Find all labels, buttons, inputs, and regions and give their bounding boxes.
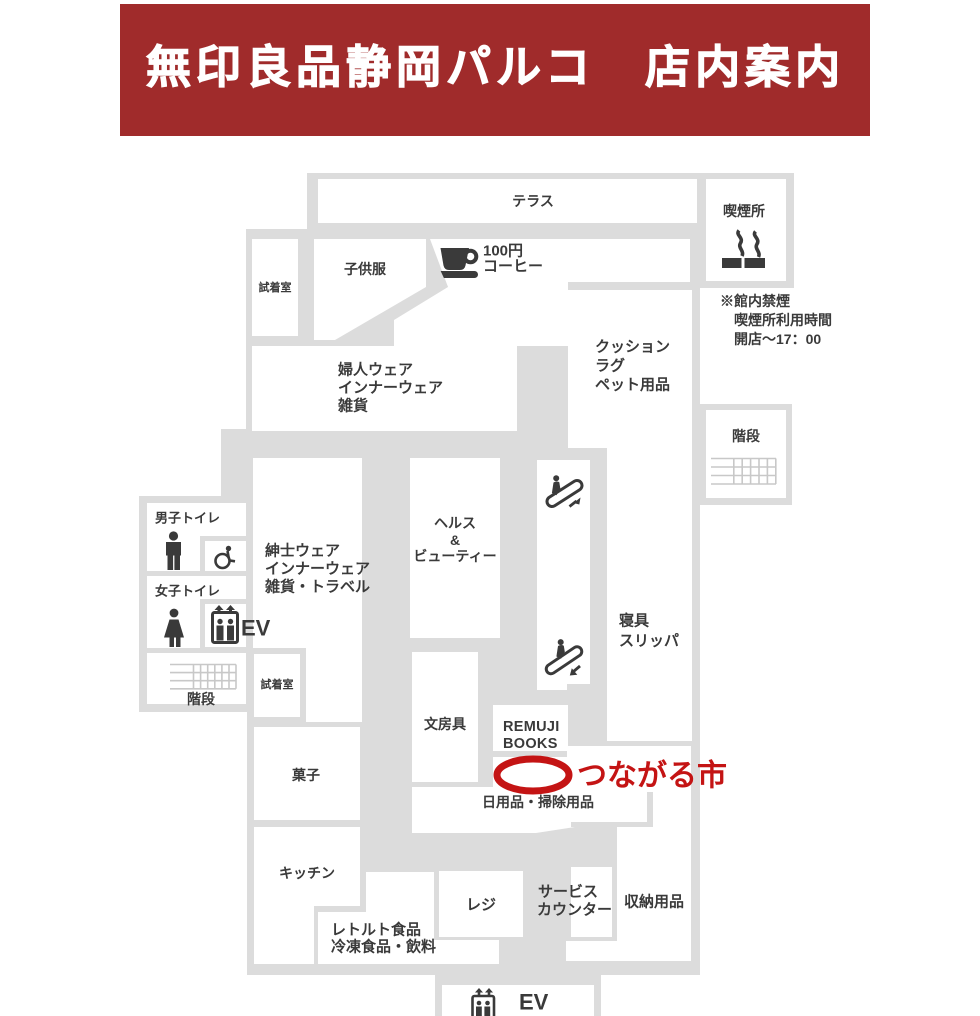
svg-text:寝具: 寝具	[619, 612, 649, 630]
svg-text:EV: EV	[241, 616, 271, 641]
svg-text:喫煙所: 喫煙所	[723, 203, 765, 219]
svg-text:試着室: 試着室	[261, 677, 294, 691]
svg-text:菓子: 菓子	[291, 767, 320, 783]
svg-text:男子トイレ: 男子トイレ	[155, 511, 220, 526]
svg-text:雑貨・トラベル: 雑貨・トラベル	[264, 578, 370, 596]
svg-text:開店～17：00: 開店～17：00	[734, 331, 821, 347]
svg-text:インナーウェア: インナーウェア	[265, 561, 370, 578]
svg-text:BOOKS: BOOKS	[503, 736, 558, 752]
svg-text:EV: EV	[519, 990, 549, 1015]
svg-text:テラス: テラス	[512, 193, 554, 209]
svg-text:カウンター: カウンター	[537, 902, 612, 919]
svg-text:婦人ウェア: 婦人ウェア	[337, 361, 413, 379]
svg-text:※館内禁煙: ※館内禁煙	[720, 293, 790, 309]
svg-text:雑貨: 雑貨	[337, 397, 368, 415]
svg-text:REMUJI: REMUJI	[503, 719, 560, 735]
svg-text:100円: 100円	[483, 243, 523, 260]
svg-text:階段: 階段	[187, 691, 215, 707]
svg-text:喫煙所利用時間: 喫煙所利用時間	[734, 312, 832, 328]
svg-text:無印良品静岡パルコ 店内案内: 無印良品静岡パルコ 店内案内	[146, 42, 845, 93]
svg-text:ラグ: ラグ	[595, 357, 625, 375]
svg-text:試着室: 試着室	[259, 280, 292, 294]
svg-text:スリッパ: スリッパ	[619, 633, 679, 650]
svg-text:階段: 階段	[732, 428, 760, 444]
svg-text:子供服: 子供服	[344, 261, 387, 277]
svg-text:ヘルス: ヘルス	[434, 515, 476, 531]
svg-text:&: &	[450, 532, 460, 548]
svg-text:女子トイレ: 女子トイレ	[155, 584, 220, 599]
svg-text:インナーウェア: インナーウェア	[338, 380, 443, 397]
svg-text:サービス: サービス	[538, 884, 598, 901]
svg-text:ペット用品: ペット用品	[595, 377, 670, 394]
svg-text:紳士ウェア: 紳士ウェア	[265, 542, 340, 560]
svg-text:コーヒー: コーヒー	[483, 258, 543, 275]
svg-text:日用品・掃除用品: 日用品・掃除用品	[482, 794, 594, 810]
svg-text:キッチン: キッチン	[279, 865, 335, 881]
svg-text:クッション: クッション	[595, 339, 670, 356]
svg-text:ビューティー: ビューティー	[413, 548, 496, 564]
svg-text:レジ: レジ	[466, 897, 496, 914]
svg-text:レトルト食品: レトルト食品	[331, 921, 421, 939]
svg-text:冷凍食品・飲料: 冷凍食品・飲料	[331, 938, 436, 956]
svg-text:つながる市: つながる市	[577, 759, 727, 793]
svg-text:文房具: 文房具	[424, 716, 466, 732]
svg-text:収納用品: 収納用品	[624, 893, 684, 911]
